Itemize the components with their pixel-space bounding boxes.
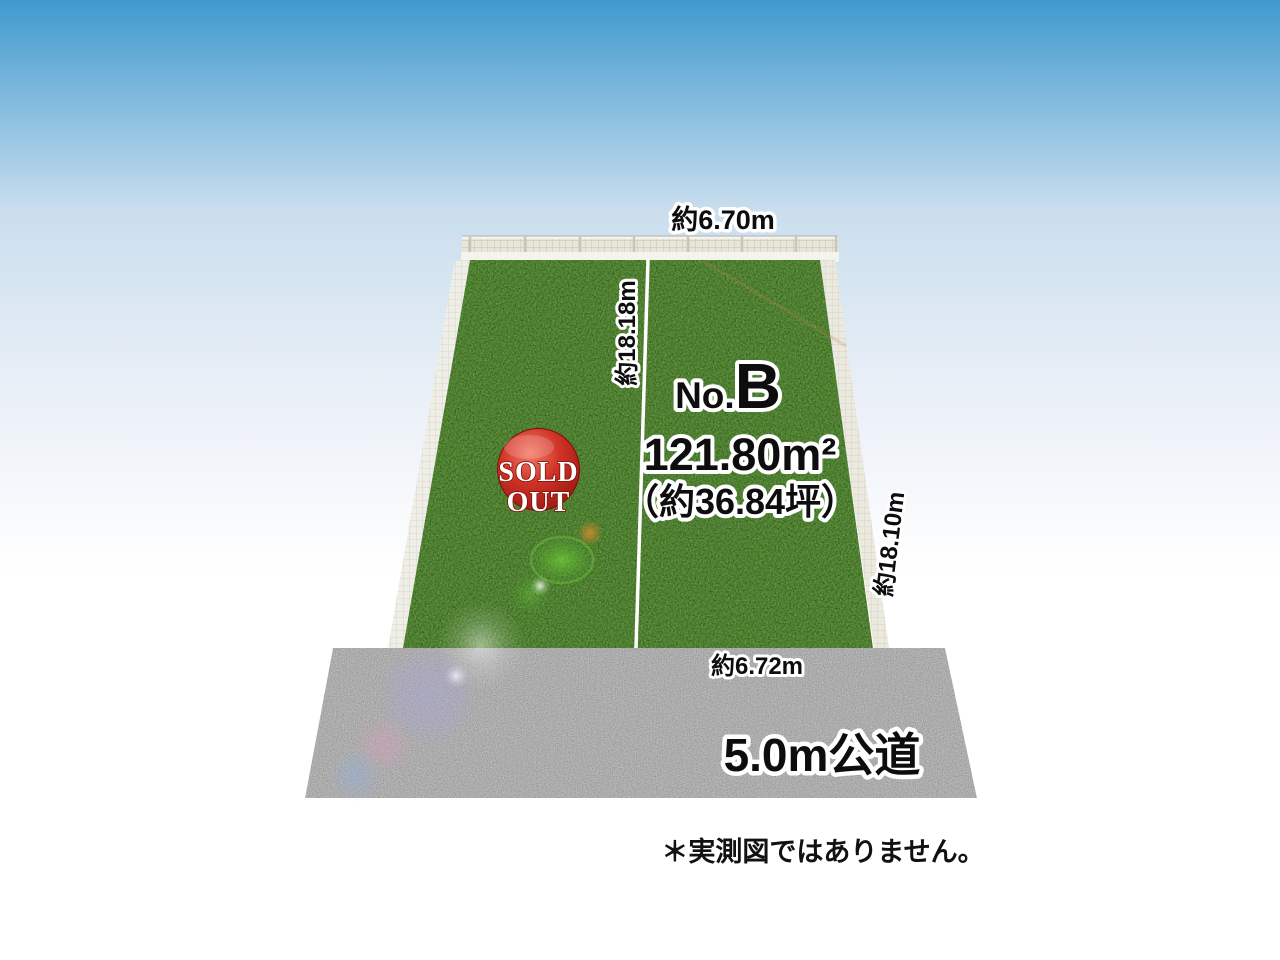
flare-blue [329,748,383,802]
left-depth-label: 約18.18m [613,280,641,385]
top-fence [461,236,839,262]
sold-out-line1: SOLD [498,457,578,488]
flare-green-small [510,574,550,614]
road-label: 5.0m公道 [724,729,921,781]
disclaimer-text: ＊実測図ではありません。 [661,836,984,867]
top-width-label: 約6.70m [671,204,775,235]
sold-out-badge: SOLD OUT [498,429,580,519]
land-plot-diagram: SOLD OUT 約6.70m 約18.18m 約18.10m No.B 121… [0,0,1280,960]
sold-out-line2: OUT [507,487,571,518]
plot-area-sqm: 121.80m² [644,429,837,480]
plot-area-tsubo: （約36.84坪） [623,481,857,522]
bottom-width-label: 約6.72m [711,652,803,680]
plot-number-prefix: No. [675,375,735,416]
plot-number-letter: B [735,350,781,422]
